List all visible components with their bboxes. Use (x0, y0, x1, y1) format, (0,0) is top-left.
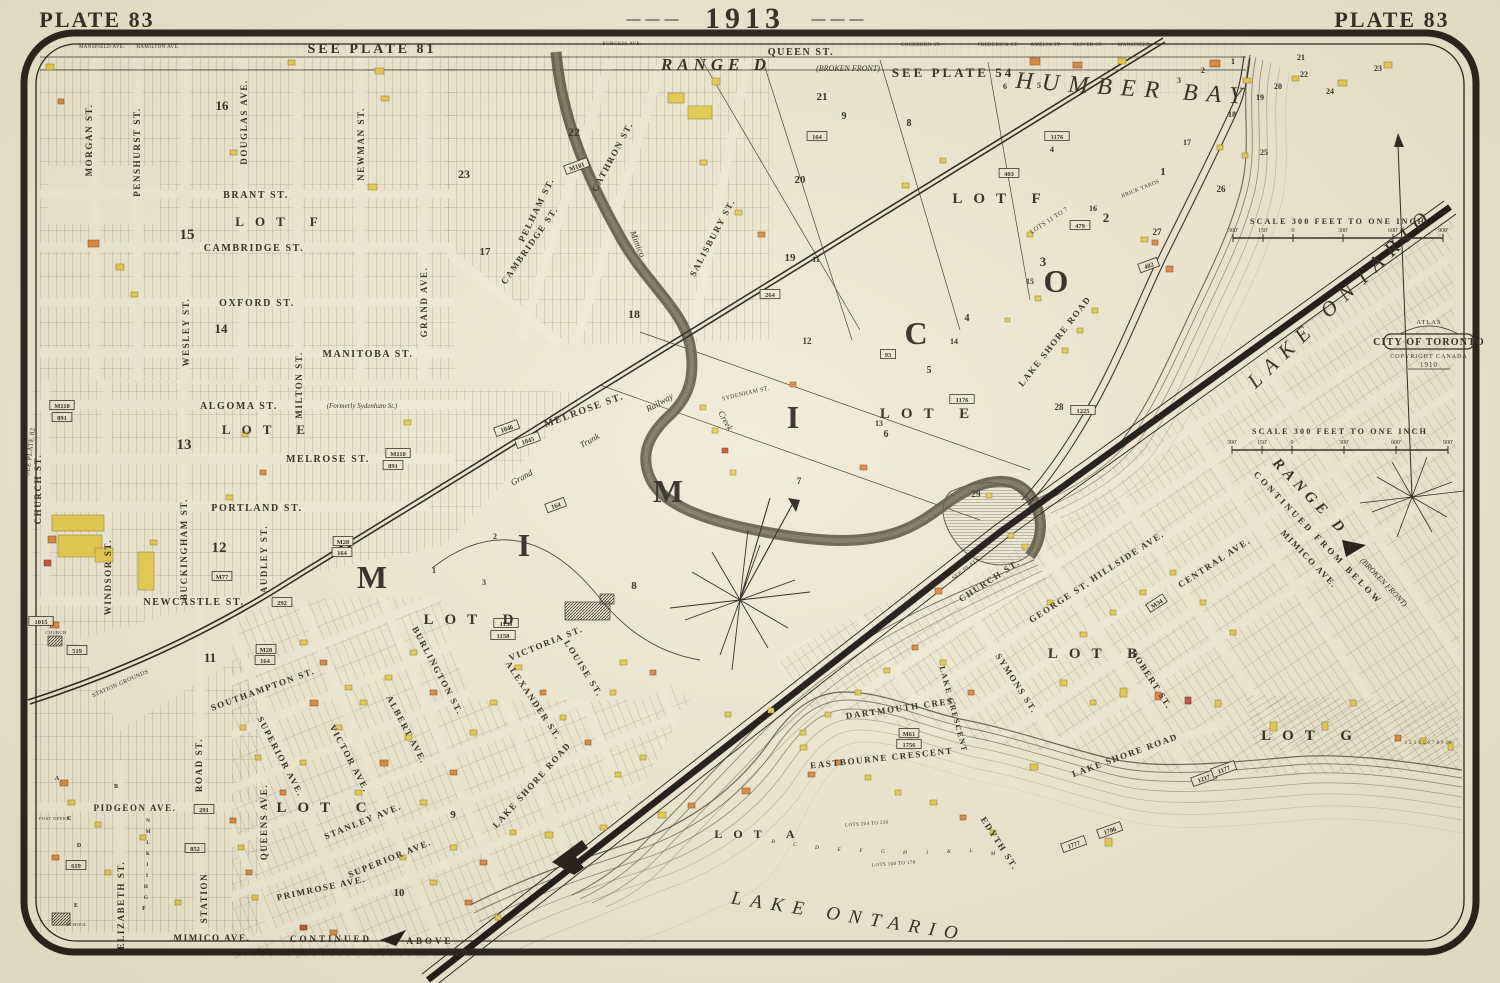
atlas-map-plate-83: M110891M110891M1011176403479164264931176… (0, 0, 1500, 983)
building-footprint (912, 645, 918, 650)
building-footprint (1166, 266, 1173, 272)
plan-number: M77 (216, 574, 229, 581)
scale1-tick-6: 900' (1438, 228, 1448, 234)
building-footprint (495, 915, 501, 920)
building-footprint (46, 64, 54, 70)
scale1-tick-1: 300' (1228, 228, 1238, 234)
newcastle-st: NEWCASTLE ST. (143, 597, 244, 608)
plan-number: 891 (388, 463, 398, 470)
building-footprint (1292, 76, 1299, 81)
plan-number: 264 (765, 292, 776, 299)
building-footprint (138, 552, 154, 590)
building-footprint (560, 715, 566, 720)
building-footprint (1008, 533, 1014, 538)
lot-num: 9 (450, 809, 456, 821)
building-footprint (640, 755, 646, 760)
church-st-w: CHURCH ST. (33, 454, 43, 525)
burgess-ave: BURGESS AVE. (602, 42, 641, 47)
building-footprint (1118, 58, 1126, 64)
plan-number: 1176 (956, 397, 969, 404)
lot-num: 11 (204, 650, 216, 665)
building-footprint (288, 60, 295, 65)
building-footprint (610, 690, 616, 695)
lot-num: 4 (965, 313, 970, 324)
scale2-tick-1: 300' (1227, 440, 1237, 446)
mimico-letter-c: C (904, 315, 927, 351)
building-footprint (175, 900, 181, 905)
lot-num: 17 (480, 246, 492, 258)
building-footprint (450, 845, 457, 850)
lot-num: 2 (493, 532, 497, 541)
building-footprint (300, 760, 306, 765)
shore-letter: E (836, 847, 841, 853)
elizabeth-st: ELIZABETH ST. (116, 861, 126, 950)
building-footprint (1152, 240, 1158, 245)
building-footprint (116, 264, 124, 270)
building-footprint (1090, 700, 1096, 705)
building-footprint (240, 725, 246, 730)
frederica-st: FREDERICA ST. (978, 43, 1019, 48)
lot-num: 12 (803, 336, 813, 346)
lot-num: 5 (1037, 81, 1041, 90)
building-footprint (140, 835, 146, 840)
building-footprint (1217, 145, 1223, 150)
building-footprint (825, 712, 831, 717)
building-footprint (790, 382, 796, 387)
lot-num: 14 (950, 337, 958, 346)
stamp-year: 1910 (1420, 361, 1438, 369)
lot-num: 12 (212, 540, 227, 556)
portland-st: PORTLAND ST. (211, 503, 302, 514)
douglas-ave: DOUGLAS AVE. (239, 79, 249, 165)
milton-st: MILTON ST. (294, 351, 304, 418)
lot-num: 14 (215, 321, 229, 336)
lot-num: 22 (1300, 70, 1308, 79)
mimico-letter-i1: I (518, 527, 530, 563)
building-footprint (700, 405, 706, 410)
mimico-letter-o: O (1044, 263, 1069, 299)
building-footprint (255, 755, 261, 760)
newman-st: NEWMAN ST. (356, 107, 366, 181)
block-letter: N (146, 819, 150, 824)
plan-number: 292 (277, 600, 287, 607)
building-footprint (300, 925, 307, 930)
audley-st: AUDLEY ST. (259, 525, 269, 594)
scale1-tick-5: 600' (1388, 228, 1398, 234)
block-letter: D (77, 843, 82, 849)
broken-front-top: (BROKEN FRONT) (816, 64, 880, 73)
building-footprint (410, 650, 417, 655)
morgan-st: MORGAN ST. (84, 104, 94, 177)
block-letter: G (144, 896, 148, 901)
building-footprint (1338, 80, 1347, 86)
building-footprint (540, 690, 546, 695)
building-footprint (52, 515, 104, 531)
lot-num: 7 (797, 476, 802, 486)
building-footprint (808, 772, 815, 777)
building-footprint (58, 99, 64, 104)
building-footprint (1105, 838, 1112, 846)
building-footprint (510, 830, 516, 835)
title-year: 1913 (705, 2, 785, 35)
building-footprint (490, 700, 497, 705)
building-footprint (895, 790, 901, 795)
shore-letter: C (793, 842, 797, 848)
block-letter: H (144, 885, 148, 890)
scale1-title: SCALE 300 FEET TO ONE INCH (1250, 217, 1426, 226)
lot-num: 23 (458, 167, 470, 181)
building-footprint (1110, 610, 1116, 615)
lot-num: 13 (177, 437, 192, 453)
building-footprint (1141, 237, 1148, 242)
lot-d: LOT D (424, 612, 525, 628)
plan-number: 619 (71, 863, 82, 870)
scale1-tick-2: 150' (1258, 228, 1268, 234)
plan-number: 1015 (35, 619, 49, 626)
building-footprint (1395, 735, 1401, 741)
building-footprint (345, 685, 352, 690)
scale2-tick-2: 150' (1257, 440, 1267, 446)
block-letter: C (67, 816, 71, 822)
lot-c: LOT C (277, 800, 378, 816)
buckingham-st: BUCKINGHAM ST. (179, 498, 189, 600)
continued-label: CONTINUED (290, 934, 372, 944)
plate-right-label: PLATE 83 (1334, 7, 1449, 32)
plan-number: M110 (390, 451, 406, 458)
building-footprint (404, 420, 411, 425)
building-footprint (226, 495, 233, 500)
building-footprint (420, 800, 427, 805)
building-footprint (1200, 600, 1206, 605)
building-footprint (1210, 60, 1220, 67)
building-footprint (940, 158, 946, 163)
plan-number: 1225 (1077, 408, 1091, 415)
scale1-tick-3: 0 (1292, 228, 1295, 234)
plate-left-label: PLATE 83 (39, 7, 154, 32)
building-footprint (1243, 78, 1251, 83)
building-footprint (545, 832, 553, 838)
melrose-st: MELROSE ST. (286, 454, 370, 465)
building-footprint (88, 240, 99, 247)
building-footprint (1215, 700, 1221, 707)
plan-number: 519 (72, 648, 83, 655)
building-footprint (940, 660, 946, 665)
building-footprint (380, 760, 388, 766)
wesley-st: WESLEY ST. (181, 297, 191, 366)
building-footprint (1080, 632, 1087, 637)
mimico-letter-i2: I (787, 399, 799, 435)
building-footprint (742, 788, 750, 794)
shore-letter: L (968, 848, 972, 854)
building-footprint (700, 160, 707, 165)
building-footprint (1035, 296, 1041, 301)
building-footprint (381, 96, 389, 101)
building-footprint (1030, 58, 1040, 65)
lot-num: 10 (394, 887, 406, 899)
building-footprint (935, 588, 942, 594)
penshurst-st: PENSHURST ST. (132, 107, 142, 197)
building-footprint (800, 745, 807, 750)
building-footprint (768, 708, 774, 713)
building-footprint (260, 470, 266, 475)
building-footprint (722, 448, 728, 453)
plan-number: 164 (812, 134, 823, 141)
building-footprint (385, 675, 392, 680)
lot-num: 3 (1040, 254, 1047, 269)
stamp-atlas: ATLAS (1416, 319, 1441, 326)
algoma-st: ALGOMA ST. (200, 401, 278, 412)
building-footprint (360, 700, 367, 705)
shore-letter: G (881, 849, 885, 855)
lot-g: LOT G (1261, 728, 1363, 744)
building-footprint (688, 106, 712, 119)
scale2-tick-3: 0 (1291, 440, 1294, 446)
plan-number: 164 (260, 658, 271, 665)
scale2-tick-6: 900' (1443, 440, 1453, 446)
lot-num: 6 (1003, 82, 1007, 91)
plan-number: 852 (190, 846, 200, 853)
lot-f: LOT F (952, 191, 1051, 207)
station-rd: STATION (199, 873, 209, 923)
block-letter: I (146, 874, 148, 879)
lot-num: 25 (1260, 148, 1268, 157)
building-footprint (688, 803, 695, 808)
building-footprint (430, 690, 437, 695)
building-footprint (150, 540, 157, 545)
building-footprint (1092, 308, 1098, 313)
lot-num: 16 (216, 98, 230, 113)
lot-num: 3 (1177, 76, 1181, 85)
building-footprint (68, 800, 75, 805)
church-label: CHURCH (45, 630, 67, 635)
building-footprint (44, 560, 51, 566)
building-footprint (960, 815, 966, 820)
plan-number: 403 (1004, 171, 1015, 178)
lot-num: 29 (972, 489, 982, 499)
lot-num: 22 (568, 125, 580, 139)
lot-num: 9 (842, 111, 847, 122)
building-footprint (1384, 62, 1392, 68)
building-footprint (1230, 630, 1236, 635)
lot-num: 20 (1274, 82, 1282, 91)
building-footprint (480, 860, 487, 865)
mansfield: MANSFIELD (1118, 43, 1150, 48)
shore-letter: M (990, 851, 996, 857)
brant-st: BRANT ST. (223, 190, 289, 201)
building-footprint (230, 150, 237, 155)
building-footprint (320, 660, 327, 665)
building-footprint (1140, 590, 1146, 595)
building-footprint (60, 780, 68, 786)
lot-num: 8 (631, 580, 637, 592)
stamp-city: CITY OF TORONTO (1373, 337, 1485, 348)
building-footprint (725, 712, 731, 717)
building-footprint (1022, 544, 1028, 549)
building-footprint (1062, 348, 1068, 353)
building-footprint (1073, 62, 1082, 68)
lot-num: 15 (1026, 277, 1034, 286)
lot-a: LOT A (714, 827, 805, 841)
lot-b: LOT B (1048, 646, 1148, 662)
plan-number: 1756 (903, 742, 917, 749)
see-plate-54: SEE PLATE 54 (892, 65, 1014, 80)
road-st: ROAD ST. (194, 738, 204, 792)
plan-number: M61 (903, 731, 916, 738)
lot-e-west: LOT E (222, 422, 316, 437)
above-label: ABOVE (406, 936, 453, 946)
lot-num: 21 (817, 91, 828, 103)
building-footprint (650, 670, 656, 675)
building-footprint (238, 845, 244, 850)
lot-e: LOT E (880, 406, 980, 422)
building-footprint (600, 825, 607, 830)
building-footprint (1030, 764, 1038, 770)
building-footprint (1350, 700, 1356, 706)
manitoba-st: MANITOBA ST. (322, 349, 413, 360)
lot-num: 8 (907, 118, 912, 129)
building-footprint (355, 790, 362, 795)
mimico-letter-m1: M (357, 559, 387, 595)
lot-num: 13 (875, 419, 883, 428)
building-footprint (865, 775, 871, 780)
stamp-copyright: COPYRIGHT CANADA (1390, 354, 1467, 360)
plan-number: M28 (260, 647, 273, 654)
plan-number: 479 (1075, 223, 1086, 230)
amelia-st: AMELIA ST. (1030, 43, 1061, 48)
scale2-title: SCALE 300 FEET TO ONE INCH (1252, 427, 1428, 436)
building-footprint (712, 78, 720, 85)
school-label: SCHOOL (67, 922, 87, 927)
building-footprint (730, 470, 736, 475)
see-plate-81: SEE PLATE 81 (307, 42, 436, 57)
building-footprint (368, 184, 377, 190)
building-footprint (658, 812, 666, 818)
building-footprint (131, 292, 138, 297)
building-footprint (252, 895, 258, 900)
lot-num: 27 (1153, 227, 1163, 237)
lot-num: 1 (432, 566, 436, 575)
block-letter: F (142, 906, 146, 912)
shore-letter: K (946, 849, 951, 855)
lot-num: 1 (1231, 57, 1235, 66)
plan-number: 1176 (1051, 134, 1064, 141)
plan-number: M110 (54, 403, 70, 410)
block-letter: B (114, 784, 118, 790)
hamilton-ave: HAMILTON AVE. (136, 45, 179, 50)
lot-num: 15 (180, 227, 195, 243)
scale2-tick-5: 600' (1391, 440, 1401, 446)
building-footprint (375, 68, 384, 74)
building-footprint (1185, 697, 1191, 704)
block-letter: K (146, 852, 150, 857)
building-footprint (860, 465, 867, 470)
oxford-st: OXFORD ST. (219, 298, 295, 309)
mimico-ave-sw: MIMICO AVE. (174, 933, 251, 943)
building-footprint (902, 183, 909, 188)
block-letter: E (74, 903, 78, 909)
building-footprint (1242, 153, 1248, 158)
lot-num: 16 (1089, 204, 1097, 213)
building-footprint (95, 822, 101, 827)
queens-ave: QUEENS AVE. (259, 784, 269, 860)
map-canvas: M110891M110891M1011176403479164264931176… (0, 0, 1500, 983)
cambridge-st: CAMBRIDGE ST. (204, 243, 305, 254)
building-footprint (310, 700, 318, 706)
block-letter: A (55, 776, 60, 782)
shore-letter: D (814, 845, 819, 851)
building-footprint (620, 660, 627, 665)
shore-letter: F (858, 848, 863, 854)
lot-f-west: LOT F (235, 214, 328, 229)
lot-num: 18 (1228, 110, 1236, 119)
building-footprint (758, 232, 765, 237)
range-d-top: RANGE D (660, 55, 771, 74)
plan-number: 164 (337, 550, 348, 557)
lot-num: 26 (1217, 184, 1227, 194)
building-footprint (930, 800, 937, 805)
lot-num: 19 (785, 252, 797, 264)
building-footprint (884, 668, 890, 673)
building-footprint (430, 880, 437, 885)
plan-number: 1158 (497, 633, 510, 640)
title-dash-right: ——— (811, 12, 869, 27)
lot-num: 6 (884, 429, 889, 440)
building-footprint (615, 772, 621, 777)
lot-num: 19 (1256, 93, 1264, 102)
building-footprint (968, 690, 974, 695)
lot-num: 5 (927, 365, 932, 376)
lot-num: 17 (1183, 138, 1191, 147)
scale2-tick-4: 300' (1339, 440, 1349, 446)
plan-number: 891 (57, 415, 67, 422)
building-footprint (712, 428, 718, 433)
mansfield-ave: MANSFIELD AVE. (79, 45, 125, 50)
building-footprint (52, 855, 59, 860)
lotg-numbers: 1 2 3 4 5 6 7 8 9 10 (1405, 741, 1452, 746)
building-footprint (800, 730, 806, 735)
building-footprint (1005, 318, 1010, 322)
lot-num: 28 (1055, 402, 1065, 412)
grand-ave: GRAND AVE. (419, 267, 429, 338)
building-footprint (470, 730, 477, 735)
queen-st: QUEEN ST. (768, 47, 834, 58)
building-footprint (1170, 570, 1176, 575)
building-footprint (668, 93, 684, 103)
oliver-st: OLIVER ST. (1073, 43, 1103, 48)
block-letter: M (146, 830, 151, 835)
building-footprint (105, 870, 111, 875)
lot-num: 24 (1326, 87, 1334, 96)
plan-number: M28 (337, 539, 350, 546)
lot-num: 11 (812, 255, 820, 264)
lot-num: 18 (628, 307, 640, 321)
building-footprint (48, 536, 56, 543)
lot-num: 21 (1297, 53, 1305, 62)
lot-num: 2 (1201, 66, 1205, 75)
building-footprint (585, 740, 591, 745)
building-footprint (465, 900, 472, 905)
building-footprint (1060, 680, 1067, 686)
building-footprint (735, 210, 742, 215)
plan-number: 93 (885, 352, 892, 359)
lot-num: 3 (482, 578, 486, 587)
building-footprint (300, 640, 307, 645)
pidgeon-ave: PIDGEON AVE. (93, 803, 176, 813)
lot-num: 2 (1103, 210, 1110, 225)
title-dash-left: ——— (626, 12, 684, 27)
cockburn-st: COCKBURN ST. (901, 43, 942, 48)
lot-num: 1 (1160, 166, 1166, 178)
